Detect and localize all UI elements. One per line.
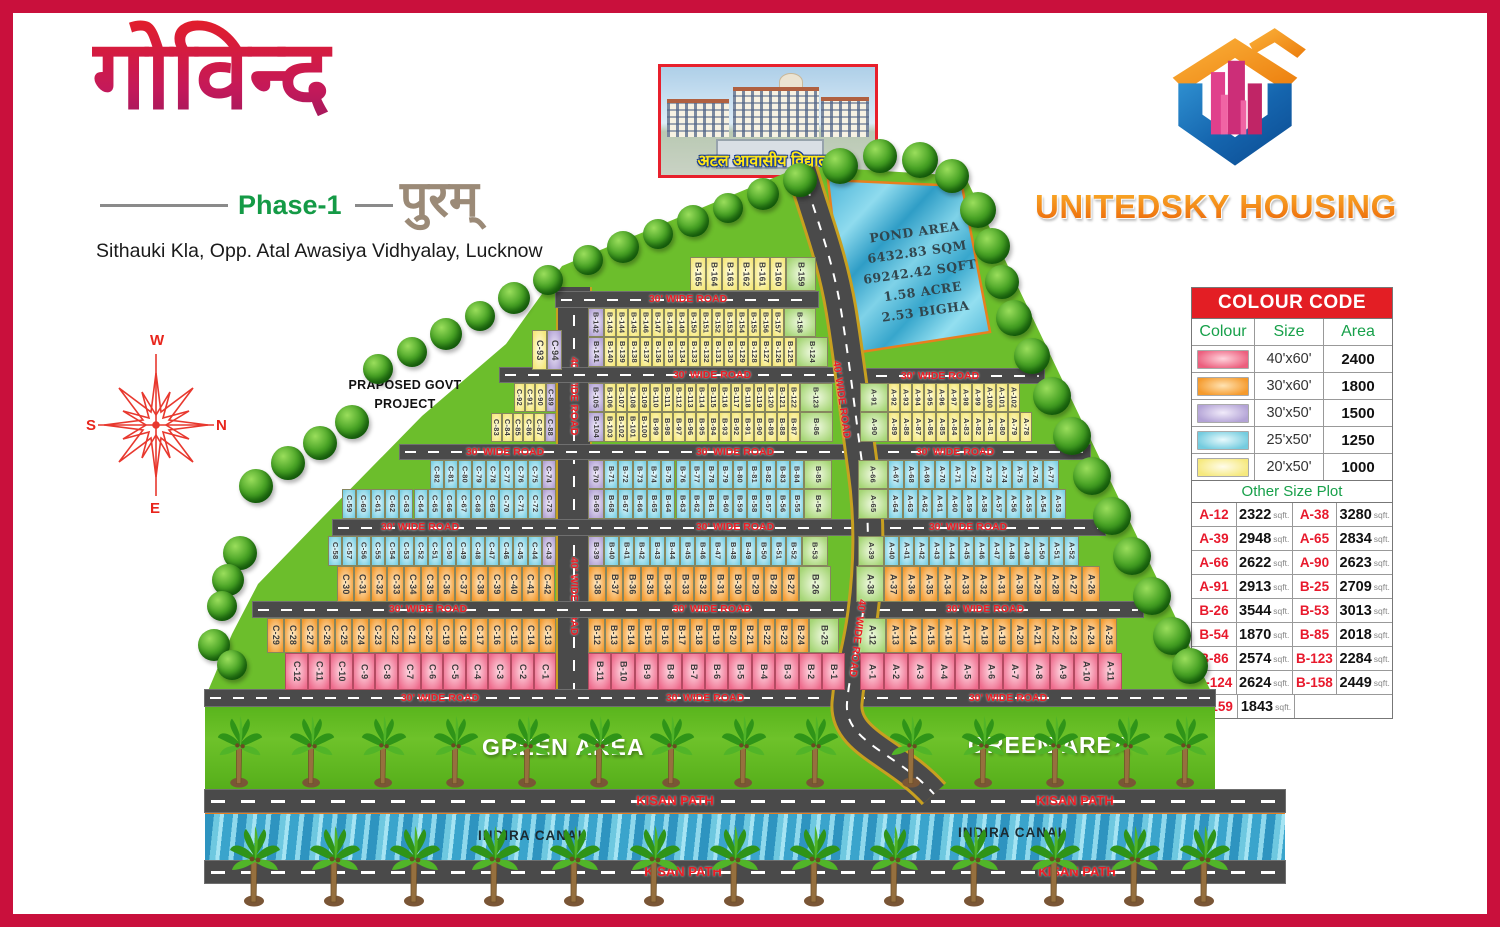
plot-B-120: B-120 [765, 383, 777, 412]
tree-icon [1172, 648, 1208, 684]
plot-A-85: A-85 [936, 412, 948, 442]
plot-B-95: B-95 [696, 412, 708, 442]
plot-C-10: C-10 [330, 653, 353, 690]
plot-A-90: A-90 [860, 412, 888, 442]
plot-B-54: B-54 [804, 489, 832, 519]
plot-A-92: A-92 [888, 383, 900, 412]
plot-A-68: A-68 [904, 460, 920, 489]
plot-B-165: B-165 [690, 257, 706, 291]
plot-C-9: C-9 [353, 653, 376, 690]
plot-A-52: A-52 [1064, 536, 1079, 566]
plot-A-29: A-29 [1028, 566, 1046, 602]
plot-B-96: B-96 [685, 412, 697, 442]
plot-B-27: B-27 [782, 566, 800, 602]
plot-B-8: B-8 [658, 653, 681, 690]
plot-B-105: B-105 [588, 383, 604, 412]
plot-C-84: C-84 [502, 413, 513, 442]
plot-C-81: C-81 [444, 460, 458, 489]
plot-C-31: C-31 [354, 566, 371, 602]
road-label: 30' WIDE ROAD [381, 521, 459, 533]
plot-B-49: B-49 [741, 536, 756, 566]
plot-A-97: A-97 [948, 383, 960, 412]
palm-tree-icon [961, 708, 1007, 788]
palm-tree-icon [870, 816, 920, 908]
plot-C-54: C-54 [385, 536, 399, 566]
plot-B-135: B-135 [664, 337, 676, 367]
plot-B-6: B-6 [705, 653, 728, 690]
plot-B-133: B-133 [688, 337, 700, 367]
plot-C-64: C-64 [414, 489, 428, 519]
road-30-7: 30' WIDE ROAD30' WIDE ROAD30' WIDE ROAD [205, 690, 1215, 706]
tree-icon [465, 301, 495, 331]
plot-A-25: A-25 [1100, 618, 1118, 653]
tree-icon [1073, 457, 1111, 495]
tree-icon [498, 282, 530, 314]
plot-C-30: C-30 [337, 566, 354, 602]
plot-A-55: A-55 [1021, 489, 1036, 519]
plot-B-55: B-55 [790, 489, 804, 519]
plot-A-15: A-15 [922, 618, 940, 653]
plot-A-56: A-56 [1006, 489, 1021, 519]
site-plan-poster: गोविन्द Phase-1 पुरम् Sithauki Kla, Opp.… [0, 0, 1500, 927]
plot-B-132: B-132 [700, 337, 712, 367]
plot-B-71: B-71 [604, 460, 618, 489]
tree-icon [363, 354, 393, 384]
plot-C-63: C-63 [399, 489, 413, 519]
plot-B-151: B-151 [700, 308, 712, 337]
plot-C-74: C-74 [542, 460, 556, 489]
plot-A-37: A-37 [884, 566, 902, 602]
plot-A-17: A-17 [957, 618, 975, 653]
road-30-1: 30' WIDE ROAD [556, 292, 818, 307]
road-label: 30' WIDE ROAD [466, 446, 544, 458]
road-label: 30' WIDE ROAD [696, 521, 774, 533]
plot-A-66: A-66 [858, 460, 888, 489]
plot-A-59: A-59 [962, 489, 977, 519]
plot-B-16: B-16 [656, 618, 673, 653]
plot-B-91: B-91 [742, 412, 754, 442]
plot-A-60: A-60 [947, 489, 962, 519]
plot-C-65: C-65 [428, 489, 442, 519]
plot-A-99: A-99 [972, 383, 984, 412]
plot-B-109: B-109 [639, 383, 651, 412]
plot-B-76: B-76 [676, 460, 690, 489]
plot-C-26: C-26 [318, 618, 335, 653]
plot-A-43: A-43 [929, 536, 944, 566]
plot-B-32: B-32 [694, 566, 712, 602]
plot-B-10: B-10 [611, 653, 634, 690]
plot-B-106: B-106 [604, 383, 616, 412]
plot-C-40: C-40 [505, 566, 522, 602]
plot-B-158: B-158 [784, 308, 816, 337]
plot-B-131: B-131 [712, 337, 724, 367]
plot-B-128: B-128 [748, 337, 760, 367]
plot-C-88: C-88 [545, 413, 556, 442]
plot-B-116: B-116 [719, 383, 731, 412]
plot-A-7: A-7 [1003, 653, 1027, 690]
tree-icon [607, 231, 639, 263]
plot-B-130: B-130 [724, 337, 736, 367]
plot-C-83: C-83 [491, 413, 502, 442]
plot-B-35: B-35 [641, 566, 659, 602]
tree-icon [1014, 338, 1050, 374]
plot-B-33: B-33 [676, 566, 694, 602]
road-30-5: 30' WIDE ROAD30' WIDE ROAD30' WIDE ROAD [333, 520, 1105, 535]
plot-C-24: C-24 [352, 618, 369, 653]
road-label: 30' WIDE ROAD [389, 603, 467, 615]
plot-B-61: B-61 [704, 489, 718, 519]
plot-A-48: A-48 [1004, 536, 1019, 566]
road-30-6: 30' WIDE ROAD30' WIDE ROAD30' WIDE ROAD [253, 602, 1143, 617]
plot-B-159: B-159 [786, 257, 816, 291]
plot-C-47: C-47 [485, 536, 499, 566]
plot-A-28: A-28 [1046, 566, 1064, 602]
plot-B-25: B-25 [809, 618, 839, 653]
palm-tree-icon [230, 816, 280, 908]
plot-C-51: C-51 [428, 536, 442, 566]
plot-B-68: B-68 [604, 489, 618, 519]
road-label: 30' WIDE ROAD [649, 293, 727, 305]
plot-B-78: B-78 [704, 460, 718, 489]
tree-icon [1053, 417, 1091, 455]
plot-B-143: B-143 [604, 308, 616, 337]
plot-B-72: B-72 [618, 460, 632, 489]
plot-A-1: A-1 [860, 653, 884, 690]
plot-C-39: C-39 [488, 566, 505, 602]
plot-C-29: C-29 [267, 618, 284, 653]
plot-C-80: C-80 [458, 460, 472, 489]
plot-B-137: B-137 [640, 337, 652, 367]
plot-B-24: B-24 [792, 618, 809, 653]
plot-C-35: C-35 [421, 566, 438, 602]
plot-C-49: C-49 [456, 536, 470, 566]
road-30-2: 30' WIDE ROAD [500, 368, 845, 382]
plot-C-53: C-53 [399, 536, 413, 566]
plot-B-148: B-148 [664, 308, 676, 337]
plot-B-5: B-5 [728, 653, 751, 690]
plot-C-45: C-45 [513, 536, 527, 566]
plot-B-104: B-104 [588, 412, 604, 442]
plot-B-40: B-40 [604, 536, 619, 566]
plot-B-101: B-101 [627, 412, 639, 442]
tree-icon [902, 142, 938, 178]
plot-A-67: A-67 [888, 460, 904, 489]
plot-C-85: C-85 [513, 413, 524, 442]
plot-C-20: C-20 [420, 618, 437, 653]
plot-B-153: B-153 [724, 308, 736, 337]
plot-B-13: B-13 [605, 618, 622, 653]
plot-B-82: B-82 [761, 460, 775, 489]
plot-A-24: A-24 [1082, 618, 1100, 653]
plot-C-44: C-44 [528, 536, 542, 566]
tree-icon [533, 265, 563, 295]
plot-B-121: B-121 [777, 383, 789, 412]
tree-icon [677, 205, 709, 237]
tree-icon [1093, 497, 1131, 535]
plot-B-28: B-28 [764, 566, 782, 602]
plot-A-50: A-50 [1034, 536, 1049, 566]
plot-C-43: C-43 [542, 536, 556, 566]
plot-B-52: B-52 [786, 536, 801, 566]
road-label: 30' WIDE ROAD [969, 692, 1047, 704]
plot-B-134: B-134 [676, 337, 688, 367]
plot-B-122: B-122 [788, 383, 800, 412]
plot-C-57: C-57 [342, 536, 356, 566]
kisan-path-upper: KISAN PATH KISAN PATH [205, 790, 1285, 812]
plot-B-3: B-3 [775, 653, 798, 690]
plot-A-70: A-70 [935, 460, 951, 489]
plot-B-141: B-141 [588, 337, 604, 367]
plot-A-77: A-77 [1043, 460, 1059, 489]
tree-icon [239, 469, 273, 503]
plot-B-45: B-45 [680, 536, 695, 566]
tree-icon [974, 228, 1010, 264]
plot-B-113: B-113 [685, 383, 697, 412]
plot-B-67: B-67 [618, 489, 632, 519]
plot-B-112: B-112 [673, 383, 685, 412]
plot-C-28: C-28 [284, 618, 301, 653]
tree-icon [996, 300, 1032, 336]
palm-tree-icon [289, 708, 335, 788]
plot-B-163: B-163 [722, 257, 738, 291]
plot-A-2: A-2 [884, 653, 908, 690]
tree-icon [335, 405, 369, 439]
tree-icon [1033, 377, 1071, 415]
plot-C-27: C-27 [301, 618, 318, 653]
plot-A-34: A-34 [938, 566, 956, 602]
tree-icon [1113, 537, 1151, 575]
plot-B-127: B-127 [760, 337, 772, 367]
palm-tree-icon [710, 816, 760, 908]
plot-A-84: A-84 [948, 412, 960, 442]
plot-A-39: A-39 [858, 536, 884, 566]
plot-B-4: B-4 [752, 653, 775, 690]
palm-tree-icon [950, 816, 1000, 908]
plot-B-99: B-99 [650, 412, 662, 442]
plot-C-38: C-38 [471, 566, 488, 602]
plot-B-62: B-62 [690, 489, 704, 519]
road-label: 30' WIDE ROAD [673, 603, 751, 615]
plot-B-90: B-90 [754, 412, 766, 442]
plot-B-107: B-107 [616, 383, 628, 412]
compass-bottom-letter: E [150, 500, 160, 517]
plot-A-81: A-81 [984, 412, 996, 442]
road-label: 40' WIDE ROAD [568, 557, 580, 635]
palm-tree-icon [1180, 816, 1230, 908]
plot-C-75: C-75 [528, 460, 542, 489]
plot-B-89: B-89 [765, 412, 777, 442]
plot-B-84: B-84 [790, 460, 804, 489]
plot-B-97: B-97 [673, 412, 685, 442]
plot-A-89: A-89 [888, 412, 900, 442]
plot-A-19: A-19 [993, 618, 1011, 653]
palm-tree-icon [790, 816, 840, 908]
plot-B-22: B-22 [758, 618, 775, 653]
plot-A-88: A-88 [900, 412, 912, 442]
plot-B-23: B-23 [775, 618, 792, 653]
palm-tree-icon [1033, 708, 1079, 788]
plot-B-50: B-50 [756, 536, 771, 566]
plot-A-21: A-21 [1028, 618, 1046, 653]
plot-C-15: C-15 [505, 618, 522, 653]
compass-right-letter: N [216, 417, 227, 434]
plot-A-40: A-40 [884, 536, 899, 566]
plot-A-5: A-5 [955, 653, 979, 690]
plot-B-12: B-12 [588, 618, 605, 653]
plot-A-49: A-49 [1019, 536, 1034, 566]
plot-A-58: A-58 [977, 489, 992, 519]
plot-C-70: C-70 [499, 489, 513, 519]
plot-C-34: C-34 [404, 566, 421, 602]
palm-tree-icon [433, 708, 479, 788]
plot-A-9: A-9 [1050, 653, 1074, 690]
plot-B-111: B-111 [662, 383, 674, 412]
plot-A-22: A-22 [1046, 618, 1064, 653]
plot-A-101: A-101 [996, 383, 1008, 412]
plot-B-47: B-47 [710, 536, 725, 566]
plot-C-91: C-91 [525, 383, 536, 412]
road-label: 30' WIDE ROAD [916, 446, 994, 458]
plot-B-146: B-146 [640, 308, 652, 337]
plot-A-4: A-4 [931, 653, 955, 690]
tree-icon [863, 139, 897, 173]
plot-B-129: B-129 [736, 337, 748, 367]
plot-A-100: A-100 [984, 383, 996, 412]
plot-B-98: B-98 [662, 412, 674, 442]
palm-tree-icon [649, 708, 695, 788]
palm-tree-icon [217, 708, 263, 788]
plot-A-91: A-91 [860, 383, 888, 412]
road-label: 30' WIDE ROAD [666, 692, 744, 704]
plot-B-77: B-77 [690, 460, 704, 489]
plot-B-21: B-21 [741, 618, 758, 653]
plot-C-69: C-69 [485, 489, 499, 519]
palm-tree-icon [361, 708, 407, 788]
plot-B-161: B-161 [754, 257, 770, 291]
plot-B-83: B-83 [776, 460, 790, 489]
plot-B-41: B-41 [619, 536, 634, 566]
plot-A-33: A-33 [956, 566, 974, 602]
palm-tree-icon [793, 708, 839, 788]
palm-tree-icon [1110, 816, 1160, 908]
plot-C-25: C-25 [335, 618, 352, 653]
road-30-3: 30' WIDE ROAD [848, 369, 1044, 383]
plot-A-6: A-6 [979, 653, 1003, 690]
plot-B-60: B-60 [718, 489, 732, 519]
plot-A-42: A-42 [914, 536, 929, 566]
plot-A-73: A-73 [981, 460, 997, 489]
plot-A-71: A-71 [950, 460, 966, 489]
plot-A-38: A-38 [856, 566, 884, 602]
plot-C-90: C-90 [535, 383, 546, 412]
plot-B-156: B-156 [760, 308, 772, 337]
plot-B-144: B-144 [616, 308, 628, 337]
plot-C-18: C-18 [454, 618, 471, 653]
plot-B-142: B-142 [588, 308, 604, 337]
plot-A-51: A-51 [1049, 536, 1064, 566]
plot-B-123: B-123 [800, 383, 833, 412]
plot-A-14: A-14 [904, 618, 922, 653]
plot-B-145: B-145 [628, 308, 640, 337]
plot-C-62: C-62 [385, 489, 399, 519]
plot-A-102: A-102 [1008, 383, 1020, 412]
plot-C-60: C-60 [356, 489, 370, 519]
plot-B-88: B-88 [777, 412, 789, 442]
pond-text: POND AREA6432.83 SQM69242.42 SQFT1.58 AC… [839, 212, 1001, 332]
plot-B-92: B-92 [731, 412, 743, 442]
plot-C-48: C-48 [471, 536, 485, 566]
plot-C-73: C-73 [542, 489, 556, 519]
plot-C-23: C-23 [369, 618, 386, 653]
plot-B-93: B-93 [719, 412, 731, 442]
plot-C-8: C-8 [375, 653, 398, 690]
plot-C-46: C-46 [499, 536, 513, 566]
plot-B-39: B-39 [588, 536, 604, 566]
plot-C-82: C-82 [430, 460, 444, 489]
plot-B-73: B-73 [633, 460, 647, 489]
plot-B-57: B-57 [761, 489, 775, 519]
plot-B-94: B-94 [708, 412, 720, 442]
plot-A-98: A-98 [960, 383, 972, 412]
plot-C-37: C-37 [455, 566, 472, 602]
tree-icon [713, 193, 743, 223]
tree-icon [217, 650, 247, 680]
plot-C-11: C-11 [308, 653, 331, 690]
plot-B-58: B-58 [747, 489, 761, 519]
plot-C-12: C-12 [285, 653, 308, 690]
plot-B-51: B-51 [771, 536, 786, 566]
plot-C-5: C-5 [443, 653, 466, 690]
plot-B-154: B-154 [736, 308, 748, 337]
plot-B-48: B-48 [726, 536, 741, 566]
plot-C-66: C-66 [442, 489, 456, 519]
plot-A-95: A-95 [924, 383, 936, 412]
tree-icon [271, 446, 305, 480]
plot-B-115: B-115 [708, 383, 720, 412]
plot-A-76: A-76 [1028, 460, 1044, 489]
plot-C-33: C-33 [387, 566, 404, 602]
plot-B-87: B-87 [788, 412, 800, 442]
plot-C-32: C-32 [371, 566, 388, 602]
plot-C-92: C-92 [514, 383, 525, 412]
plot-A-36: A-36 [902, 566, 920, 602]
plot-A-10: A-10 [1074, 653, 1098, 690]
plot-B-126: B-126 [772, 337, 784, 367]
plot-A-54: A-54 [1036, 489, 1051, 519]
plot-C-13: C-13 [539, 618, 556, 653]
plot-B-80: B-80 [733, 460, 747, 489]
plot-A-8: A-8 [1027, 653, 1051, 690]
plot-B-31: B-31 [711, 566, 729, 602]
palm-tree-icon [889, 708, 935, 788]
palm-tree-icon [1030, 816, 1080, 908]
plot-A-16: A-16 [939, 618, 957, 653]
palm-tree-icon [577, 708, 623, 788]
plot-C-56: C-56 [357, 536, 371, 566]
plot-B-100: B-100 [639, 412, 651, 442]
plot-A-61: A-61 [932, 489, 947, 519]
plot-B-152: B-152 [712, 308, 724, 337]
plot-C-78: C-78 [486, 460, 500, 489]
plot-C-16: C-16 [488, 618, 505, 653]
plot-B-30: B-30 [729, 566, 747, 602]
plot-B-164: B-164 [706, 257, 722, 291]
plot-A-41: A-41 [899, 536, 914, 566]
plot-C-94: C-94 [547, 330, 562, 370]
tree-icon [985, 265, 1019, 299]
plot-C-59: C-59 [342, 489, 356, 519]
plot-C-1: C-1 [534, 653, 557, 690]
